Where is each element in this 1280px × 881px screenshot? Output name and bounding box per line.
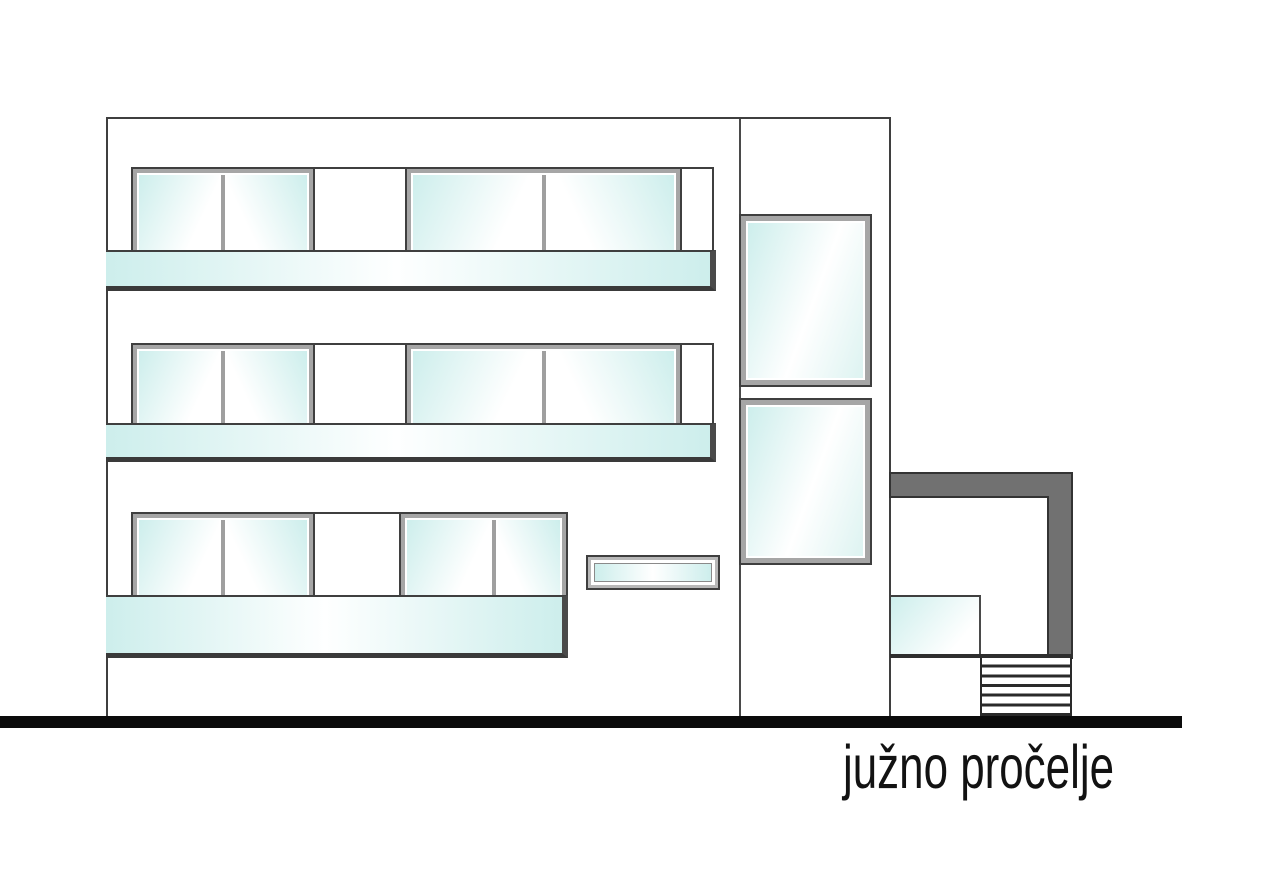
window-pane-right [227, 520, 307, 597]
window-ground-left [131, 512, 315, 597]
floor2-recess-step-line [712, 343, 714, 425]
window-pane-left [139, 351, 219, 425]
window-frame [137, 349, 309, 425]
terrace-slab-ground [106, 595, 568, 658]
window-floor2-right [405, 343, 682, 425]
small-window [586, 555, 720, 590]
window-frame [405, 518, 562, 597]
south-elevation-drawing: južno pročelje [0, 0, 1280, 881]
entrance-window [891, 595, 981, 655]
window-mullion [219, 520, 227, 597]
window-pane-left [407, 520, 490, 597]
window-ground-right [399, 512, 568, 597]
window-mullion [219, 351, 227, 425]
stairwell-window-lower [739, 398, 872, 565]
small-window-frame [591, 560, 715, 585]
exterior-stairs [980, 658, 1072, 716]
balcony-slab-floor1 [106, 250, 716, 291]
window-pane-left [413, 175, 540, 252]
ground-line [0, 716, 1182, 728]
window-pane-right [498, 520, 560, 597]
window-pane-right [227, 175, 307, 252]
window-frame [411, 349, 676, 425]
window-mullion [490, 520, 498, 597]
stairwell-window-glass [746, 405, 865, 558]
stairwell-window-upper [739, 214, 872, 387]
window-frame [137, 518, 309, 597]
window-pane-right [548, 351, 675, 425]
floor1-recess-step-line [712, 167, 714, 252]
window-floor1-right [405, 167, 682, 252]
window-pane-right [548, 175, 675, 252]
window-pane-right [227, 351, 307, 425]
window-pane-left [139, 520, 219, 597]
window-pane-left [413, 351, 540, 425]
building-top-edge [106, 117, 891, 119]
window-frame [411, 173, 676, 252]
window-mullion [540, 351, 548, 425]
balcony-slab-floor2 [106, 423, 716, 462]
window-floor2-left [131, 343, 315, 425]
window-mullion [540, 175, 548, 252]
drawing-caption: južno pročelje [843, 737, 1114, 798]
stairwell-window-glass [746, 221, 865, 380]
window-mullion [219, 175, 227, 252]
window-pane-left [139, 175, 219, 252]
window-frame [137, 173, 309, 252]
window-floor1-left [131, 167, 315, 252]
small-window-glass [594, 563, 712, 582]
